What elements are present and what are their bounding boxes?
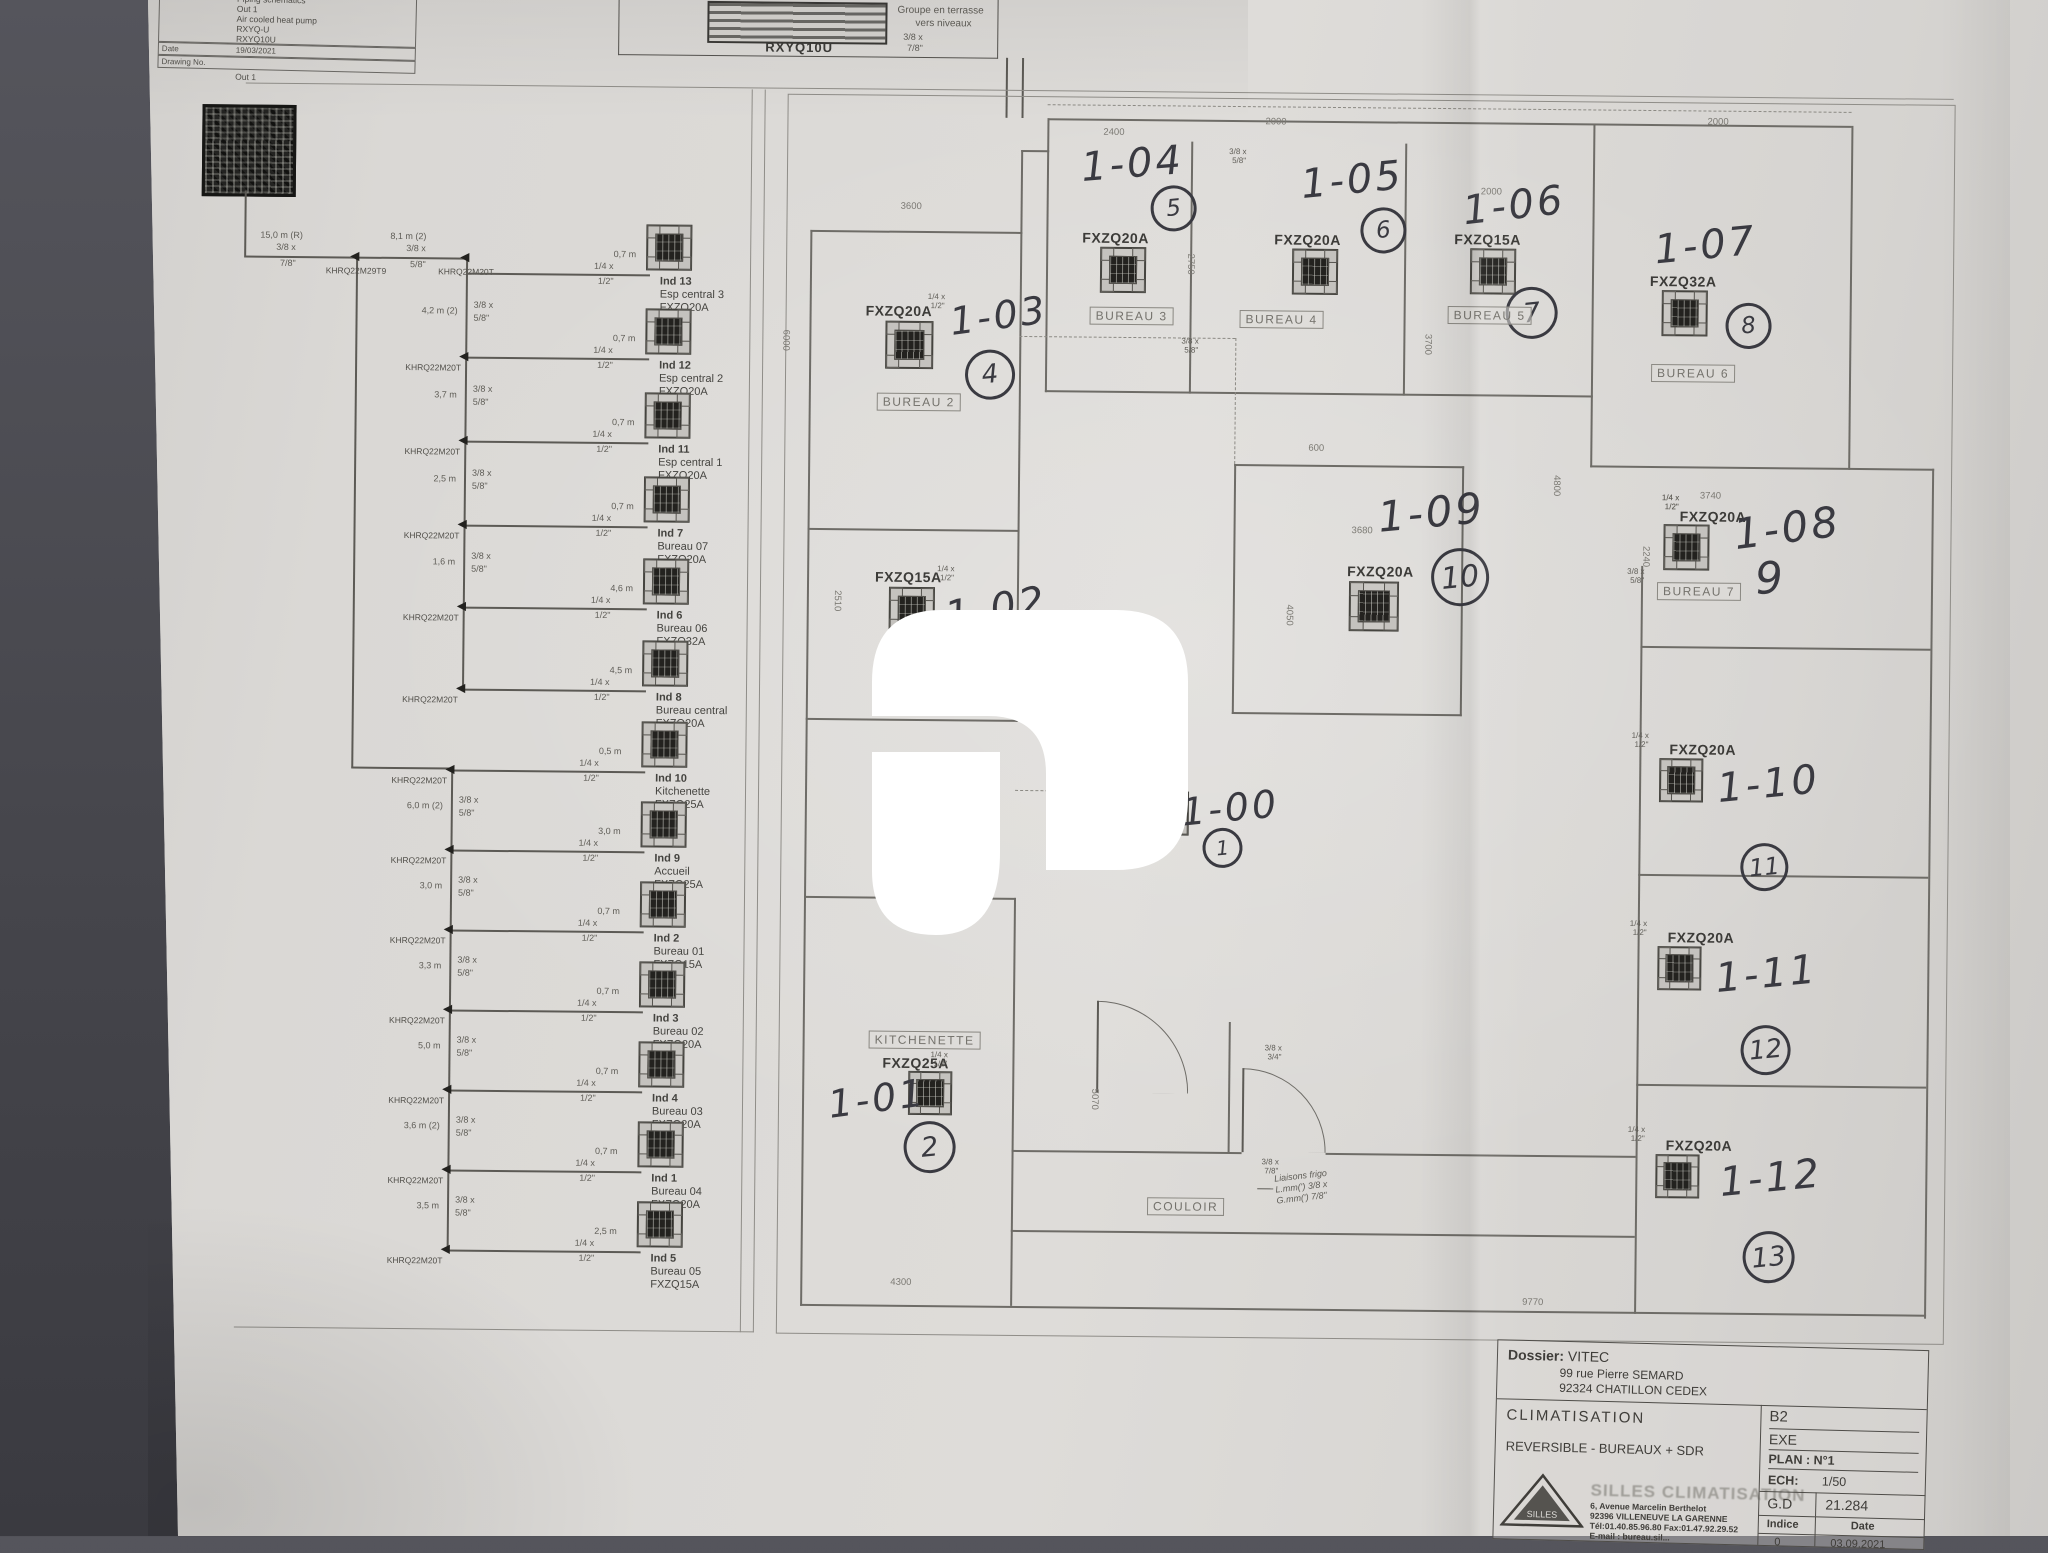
pipe-line xyxy=(464,525,648,528)
indoor-unit-room: Esp central 1 xyxy=(658,456,722,470)
cassette-core xyxy=(655,233,684,262)
branch-size-label: 1/2" xyxy=(595,529,611,539)
dimension-label: 4300 xyxy=(890,1277,911,1288)
cassette-core xyxy=(1667,767,1694,794)
cassette-core xyxy=(1301,257,1330,286)
indoor-unit-ind: Ind 1 xyxy=(651,1172,702,1185)
joint-model-label: KHRQ22M20T xyxy=(366,935,446,946)
room-label: BUREAU 4 xyxy=(1239,310,1323,329)
branch-size-label: 1/2" xyxy=(583,774,599,784)
joint-model-label: KHRQ22M20T xyxy=(414,266,518,277)
dimension-label: 3700 xyxy=(1422,334,1433,355)
chain-size-label: 5/8" xyxy=(458,889,474,899)
unit-pipe-size: 1/2" xyxy=(1634,741,1648,750)
branch-size-label: 1/2" xyxy=(595,611,611,621)
branch-size-label: 1/2" xyxy=(581,1014,597,1024)
cassette-core xyxy=(649,890,678,919)
cassette-unit-icon xyxy=(1292,249,1338,295)
plan-unit-model: FXZQ20A xyxy=(1668,929,1735,946)
cell-ech-label: ECH: xyxy=(1768,1473,1799,1488)
cell-ech-value: 1/50 xyxy=(1822,1474,1847,1489)
pipe-size-label: 3/8 x xyxy=(406,244,426,254)
chain-length-label: 3,6 m (2) xyxy=(356,1121,440,1132)
pipe-line xyxy=(451,770,645,773)
title-line: RXYQ10U xyxy=(236,34,317,46)
chain-length-label: 1,6 m xyxy=(371,557,455,568)
chain-size-label: 3/8 x xyxy=(471,552,491,562)
chain-size-label: 3/8 x xyxy=(455,1196,475,1206)
chain-length-label: 2,5 m xyxy=(372,474,456,485)
wall xyxy=(1021,150,1049,152)
pipe-line xyxy=(448,1089,642,1092)
cell-plan: PLAN : N°1 xyxy=(1768,1452,1918,1473)
chain-size-label: 5/8" xyxy=(456,1129,472,1139)
branch-length-label: 3,0 m xyxy=(561,827,621,837)
handwritten-tag: 1-07 xyxy=(1652,218,1759,274)
cassette-core xyxy=(653,401,682,430)
pipe-line xyxy=(447,1169,641,1172)
cell-date-value: 03.09.2021 xyxy=(1830,1538,1885,1551)
room-label: KITCHENETTE xyxy=(869,1031,981,1050)
cassette-core xyxy=(894,330,924,360)
unit-pipe-size: 1/2" xyxy=(1633,929,1647,938)
dimension-label: 4050 xyxy=(1284,604,1295,625)
indoor-unit-room: Bureau 02 xyxy=(653,1025,704,1038)
branch-size-label: 1/4 x xyxy=(575,1159,595,1169)
branch-length-label: 0,7 m xyxy=(574,502,634,512)
handwritten-number: 9 xyxy=(1754,552,1785,605)
pipe-length-label: 8,1 m (2) xyxy=(390,232,426,242)
plan-unit-model: FXZQ20A xyxy=(866,302,933,319)
branch-length-label: 2,5 m xyxy=(557,1227,617,1237)
cassette-core xyxy=(1666,955,1693,982)
liaison-note: Liaisons frigoL.mm(') 3/8 xG.mm(') 7/8" xyxy=(1274,1168,1330,1207)
unit-pipe-size: 1/2" xyxy=(933,1060,947,1069)
room-label: BUREAU 6 xyxy=(1651,364,1735,383)
joint-model-label: KHRQ22M20T xyxy=(362,1255,442,1266)
below-note: Out 1 xyxy=(235,72,256,82)
svg-text:SILLES: SILLES xyxy=(1527,1509,1558,1520)
refnet-joint-icon: ◀ xyxy=(459,350,468,362)
cassette-core xyxy=(652,485,681,514)
plan-unit-model: FXZQ32A xyxy=(1650,273,1717,290)
pipe-line xyxy=(449,1009,643,1012)
cassette-unit-icon xyxy=(1100,247,1146,293)
refnet-joint-icon: ◀ xyxy=(443,1002,452,1014)
cassette-core xyxy=(646,1130,675,1159)
branch-length-label: 0,7 m xyxy=(575,418,635,428)
handwritten-tag: 1-09 xyxy=(1376,483,1487,542)
cassette-unit-icon xyxy=(637,1201,683,1247)
pipe-line xyxy=(462,258,468,689)
refnet-joint-icon: ◀ xyxy=(444,842,453,854)
indoor-unit-room: Bureau 04 xyxy=(651,1185,702,1198)
branch-size-label: 1/2" xyxy=(579,1174,595,1184)
pipe-line xyxy=(351,767,451,769)
unit-pipe-size: 1/2" xyxy=(940,574,954,583)
cassette-core xyxy=(650,730,679,759)
schematic-frame-line xyxy=(740,89,753,1332)
branch-size-label: 1/4 x xyxy=(578,839,598,849)
branch-size-label: 1/4 x xyxy=(593,346,613,356)
chain-size-label: 5/8" xyxy=(474,314,490,324)
dimension-label: 2510 xyxy=(832,590,843,611)
terrace-note-2: vers niveaux xyxy=(915,18,971,30)
cassette-unit-icon xyxy=(640,801,686,847)
pipe-size-label: 7/8" xyxy=(280,259,296,269)
joint-model-label: KHRQ22M20T xyxy=(380,446,460,457)
indoor-unit-label: Ind 5Bureau 05FXZQ15A xyxy=(650,1252,701,1291)
schematic-frame-line xyxy=(234,1326,754,1332)
chain-size-label: 5/8" xyxy=(473,398,489,408)
branch-size-label: 1/2" xyxy=(598,277,614,287)
dimension-label: 3680 xyxy=(1352,525,1373,536)
chain-length-label: 3,0 m xyxy=(358,881,442,892)
dimension-label: 2000 xyxy=(1481,186,1502,197)
subject-line-2: REVERSIBLE - BUREAUX + SDR xyxy=(1506,1438,1705,1458)
chain-length-label: 4,2 m (2) xyxy=(374,306,458,317)
cassette-unit-icon xyxy=(644,392,690,438)
cassette-core xyxy=(645,1210,674,1239)
chain-size-label: 3/8 x xyxy=(457,956,477,966)
joint-model-label: KHRQ22M20T xyxy=(378,694,458,705)
cell-exe: EXE xyxy=(1769,1431,1919,1454)
dossier-label: Dossier: xyxy=(1508,1346,1564,1363)
branch-length-label: 4,5 m xyxy=(572,666,632,676)
indoor-unit-ind: Ind 2 xyxy=(654,932,705,945)
cassette-unit-icon xyxy=(646,224,692,270)
top-title-block: Title Piping schematics Out 1 Air cooled… xyxy=(157,0,417,72)
riser-pipe-size-1: 3/8 x xyxy=(903,33,923,43)
plan-unit-model: FXZQ15A xyxy=(875,569,942,586)
cell-indice-value: 0 xyxy=(1774,1536,1780,1548)
branch-size-label: 1/4 x xyxy=(579,759,599,769)
refnet-joint-icon: ◀ xyxy=(442,1082,451,1094)
branch-size-label: 1/4 x xyxy=(578,919,598,929)
outdoor-unit-icon xyxy=(707,1,887,45)
cell-indice-label: Indice xyxy=(1767,1518,1799,1531)
cassette-unit-icon xyxy=(640,881,686,927)
indoor-unit-ind: Ind 4 xyxy=(652,1092,703,1105)
outdoor-unit-model: RXYQ10U xyxy=(739,39,859,55)
indoor-unit-ind: Ind 9 xyxy=(654,852,703,865)
indoor-unit-room: Bureau 06 xyxy=(657,622,708,635)
cassette-unit-icon xyxy=(642,640,688,686)
cassette-unit-icon xyxy=(1349,581,1399,631)
cassette-unit-icon xyxy=(643,558,689,604)
chain-length-label: 3,7 m xyxy=(373,390,457,401)
cassette-unit-icon xyxy=(641,721,687,767)
chain-size-label: 5/8" xyxy=(459,809,475,819)
handwritten-tag: 1-11 xyxy=(1713,946,1820,1002)
indoor-unit-room: Kitchenette xyxy=(655,785,710,799)
branch-size-label: 1/4 x xyxy=(590,678,610,688)
indoor-unit-ind: Ind 5 xyxy=(650,1252,701,1265)
dimension-label: 9770 xyxy=(1522,1297,1543,1308)
chain-size-label: 3/8 x xyxy=(472,469,492,479)
chain-size-label: 5/8" xyxy=(471,565,487,575)
cassette-unit-icon xyxy=(1657,946,1701,990)
branch-size-label: 1/4 x xyxy=(594,262,614,272)
cassette-core xyxy=(1358,591,1390,623)
indoor-unit-room: Bureau central xyxy=(656,704,728,718)
dimension-label: 2400 xyxy=(1103,127,1124,138)
branch-size-label: 1/4 x xyxy=(575,1239,595,1249)
schematic-frame-line xyxy=(753,89,766,1332)
cassette-core xyxy=(1672,533,1701,562)
refnet-joint-icon: ◀ xyxy=(441,1162,450,1174)
dimension-label: 2000 xyxy=(1707,117,1728,128)
chain-size-label: 5/8" xyxy=(455,1209,471,1219)
bottom-title-block: Dossier: VITEC 99 rue Pierre SEMARD 9232… xyxy=(1492,1339,1929,1550)
handwritten-tag: 1-04 xyxy=(1079,137,1185,191)
cassette-unit-icon xyxy=(1659,758,1703,802)
outdoor-unit-box: RXYQ10U Groupe en terrasse vers niveaux … xyxy=(618,0,999,59)
branch-size-label: 1/2" xyxy=(582,854,598,864)
cassette-core xyxy=(1479,257,1508,286)
handwritten-tag: 1-10 xyxy=(1715,756,1822,812)
indoor-unit-room: Bureau 05 xyxy=(650,1265,701,1278)
chain-size-label: 3/8 x xyxy=(459,796,479,806)
dossier-address-2: 92324 CHATILLON CEDEX xyxy=(1559,1381,1707,1399)
cassette-unit-icon xyxy=(639,961,685,1007)
cell-date-label: Date xyxy=(1851,1520,1875,1533)
indoor-unit-ind: Ind 13 xyxy=(660,275,724,289)
indoor-unit-ind: Ind 6 xyxy=(657,609,708,622)
cassette-unit-icon xyxy=(637,1121,683,1167)
cassette-unit-icon xyxy=(644,476,690,522)
refnet-joint-icon: ◀ xyxy=(441,1242,450,1254)
cassette-unit-icon xyxy=(1655,1154,1699,1198)
cassette-core xyxy=(649,810,678,839)
cassette-core xyxy=(1670,299,1699,328)
overlay-logo xyxy=(850,600,1200,945)
chain-size-label: 3/8 x xyxy=(474,301,494,311)
refnet-joint-icon: ◀ xyxy=(445,762,454,774)
indoor-unit-ind: Ind 11 xyxy=(658,443,722,457)
refnet-joint-icon: ◀ xyxy=(456,682,465,694)
indoor-unit-model: FXZQ15A xyxy=(650,1278,701,1291)
indoor-unit-room: Accueil xyxy=(654,865,703,878)
chain-size-label: 5/8" xyxy=(472,482,488,492)
plan-unit-model: FXZQ15A xyxy=(1454,231,1521,248)
refnet-joint-icon: ◀ xyxy=(460,251,469,263)
plan-unit-model: FXZQ20A xyxy=(1666,1137,1733,1154)
chain-size-label: 5/8" xyxy=(456,1049,472,1059)
date-value: 19/03/2021 xyxy=(236,46,276,56)
branch-length-label: 4,6 m xyxy=(573,584,633,594)
terrace-note-1: Groupe en terrasse xyxy=(897,5,983,17)
pipe-size-label: 3/8 x xyxy=(276,243,296,253)
joint-model-label: KHRQ22M20T xyxy=(365,1015,445,1026)
branch-size-label: 1/2" xyxy=(580,1094,596,1104)
room-label: BUREAU 5 xyxy=(1448,306,1532,325)
indoor-unit-room: Bureau 01 xyxy=(653,945,704,958)
cassette-core xyxy=(651,649,680,678)
branch-length-label: 0,7 m xyxy=(575,334,635,344)
branch-size-label: 1/4 x xyxy=(592,430,612,440)
pipe-line xyxy=(463,607,647,610)
cell-b2: B2 xyxy=(1769,1408,1919,1433)
cassette-core xyxy=(652,567,681,596)
plan-unit-model: FXZQ20A xyxy=(1669,741,1736,758)
chain-size-label: 3/8 x xyxy=(458,876,478,886)
company-logo: SILLES xyxy=(1500,1472,1585,1532)
pipe-line xyxy=(464,441,648,444)
pipe-line xyxy=(450,929,644,932)
joint-model-label: KHRQ22M20T xyxy=(366,855,446,866)
cassette-unit-icon xyxy=(885,321,933,369)
cassette-unit-icon xyxy=(645,308,691,354)
cell-gd-label: G.D xyxy=(1767,1495,1792,1512)
room-label: BUREAU 2 xyxy=(877,393,961,412)
chain-size-label: 3/8 x xyxy=(457,1036,477,1046)
branch-size-label: 1/4 x xyxy=(576,1079,596,1089)
drawing-no-label: Drawing No. xyxy=(161,57,205,67)
dimension-label: 6000 xyxy=(780,330,791,351)
dimension-label: 5070 xyxy=(1089,1089,1100,1110)
branch-size-label: 1/2" xyxy=(578,1254,594,1264)
cassette-core xyxy=(1109,256,1138,285)
chain-size-label: 5/8" xyxy=(457,969,473,979)
handwritten-tag: 1-05 xyxy=(1299,152,1406,208)
date-label: Date xyxy=(162,44,179,53)
handwritten-tag: 1-12 xyxy=(1717,1150,1824,1206)
chain-length-label: 6,0 m (2) xyxy=(359,801,443,812)
branch-size-label: 1/2" xyxy=(597,361,613,371)
branch-size-label: 1/2" xyxy=(596,445,612,455)
branch-length-label: 0,7 m xyxy=(558,1067,618,1077)
pipe-line xyxy=(462,689,646,692)
refnet-joint-icon: ◀ xyxy=(444,922,453,934)
branch-size-label: 1/2" xyxy=(582,934,598,944)
branch-length-label: 0,7 m xyxy=(560,907,620,917)
unit-pipe-size: 1/2" xyxy=(1631,1135,1645,1144)
indoor-unit-ind: Ind 7 xyxy=(657,527,708,540)
dimension-label: 2000 xyxy=(1265,116,1286,127)
dimension-label: 2240 xyxy=(1640,546,1651,567)
indoor-unit-room: Esp central 3 xyxy=(660,288,724,302)
cassette-unit-icon xyxy=(638,1041,684,1087)
pipe-line xyxy=(244,190,246,255)
cell-gd-value: 21.284 xyxy=(1825,1497,1868,1514)
outdoor-unit-photo xyxy=(202,104,297,197)
room-label: BUREAU 7 xyxy=(1657,582,1741,601)
branch-size-label: 1/4 x xyxy=(577,999,597,1009)
cassette-core xyxy=(647,1050,676,1079)
dimension-label: 2750 xyxy=(1185,254,1196,275)
refnet-joint-icon: ◀ xyxy=(350,250,359,262)
chain-size-label: 3/8 x xyxy=(456,1116,476,1126)
subject-line-1: CLIMATISATION xyxy=(1506,1406,1645,1427)
indoor-unit-ind: Ind 8 xyxy=(656,691,728,705)
pipe-size-label: 5/8" xyxy=(1232,157,1246,166)
cassette-unit-icon xyxy=(1661,290,1707,336)
pipe-size-label: 5/8" xyxy=(1184,347,1198,356)
unit-pipe-size: 1/2" xyxy=(931,302,945,311)
dimension-label: 4800 xyxy=(1551,475,1562,496)
cassette-unit-icon xyxy=(1663,524,1709,570)
cassette-core xyxy=(1664,1163,1691,1190)
indoor-unit-ind: Ind 10 xyxy=(655,772,710,786)
dimension-label: 3740 xyxy=(1700,490,1721,501)
branch-size-label: 1/4 x xyxy=(591,596,611,606)
cassette-core xyxy=(648,970,677,999)
chain-length-label: 3,3 m xyxy=(357,961,441,972)
room-label-couloir: COULOIR xyxy=(1147,1197,1224,1216)
pipe-line xyxy=(447,1249,641,1252)
joint-model-label: KHRQ22M20T xyxy=(379,530,459,541)
joint-model-label: KHRQ22M20T xyxy=(363,1175,443,1186)
joint-model-label: KHRQ22M29T9 xyxy=(300,265,412,276)
pipe-size-label: 3/4" xyxy=(1267,1053,1281,1062)
dimension-label: 600 xyxy=(1308,443,1324,454)
unit-pipe-size: 5/8" xyxy=(1630,577,1644,586)
indoor-unit-ind: Ind 12 xyxy=(659,359,723,373)
pipe-line xyxy=(450,850,644,853)
refnet-joint-icon: ◀ xyxy=(458,434,467,446)
joint-model-label: KHRQ22M20T xyxy=(367,775,447,786)
plan-unit-model: FXZQ20A xyxy=(1347,563,1414,580)
branch-size-label: 1/2" xyxy=(594,693,610,703)
pipe-size-label: 5/8" xyxy=(410,260,426,270)
indoor-unit-room: Bureau 07 xyxy=(657,540,708,553)
plan-unit-model: FXZQ20A xyxy=(1274,231,1341,248)
refnet-joint-icon: ◀ xyxy=(458,518,467,530)
chain-length-label: 5,0 m xyxy=(357,1041,441,1052)
riser-pipe-size-2: 7/8" xyxy=(907,44,923,54)
branch-size-label: 1/4 x xyxy=(592,514,612,524)
chain-size-label: 3/8 x xyxy=(473,385,493,395)
pipe-size-label: 1/2" xyxy=(1665,503,1679,512)
indoor-unit-room: Bureau 03 xyxy=(652,1105,703,1118)
pipe-length-label: 15,0 m (R) xyxy=(260,231,303,241)
indoor-unit-ind: Ind 3 xyxy=(653,1012,704,1025)
indoor-unit-room: Esp central 2 xyxy=(659,372,723,386)
pipe-line xyxy=(351,257,357,768)
room-label: BUREAU 3 xyxy=(1090,307,1174,326)
pipe-line xyxy=(1257,1188,1273,1189)
dimension-label: 3600 xyxy=(901,201,922,212)
branch-length-label: 0,7 m xyxy=(559,987,619,997)
branch-length-label: 0,5 m xyxy=(561,747,621,757)
branch-length-label: 0,7 m xyxy=(558,1147,618,1157)
branch-length-label: 0,7 m xyxy=(576,250,636,260)
joint-model-label: KHRQ22M20T xyxy=(364,1095,444,1106)
joint-model-label: KHRQ22M20T xyxy=(379,612,459,623)
cassette-core xyxy=(654,317,683,346)
joint-model-label: KHRQ22M20T xyxy=(381,362,461,373)
chain-length-label: 3,5 m xyxy=(355,1201,439,1212)
dossier-name: VITEC xyxy=(1568,1348,1610,1365)
plan-unit-model: FXZQ20A xyxy=(1082,230,1149,247)
cassette-unit-icon xyxy=(1470,248,1516,294)
pipe-line xyxy=(465,357,649,360)
refnet-joint-icon: ◀ xyxy=(457,600,466,612)
